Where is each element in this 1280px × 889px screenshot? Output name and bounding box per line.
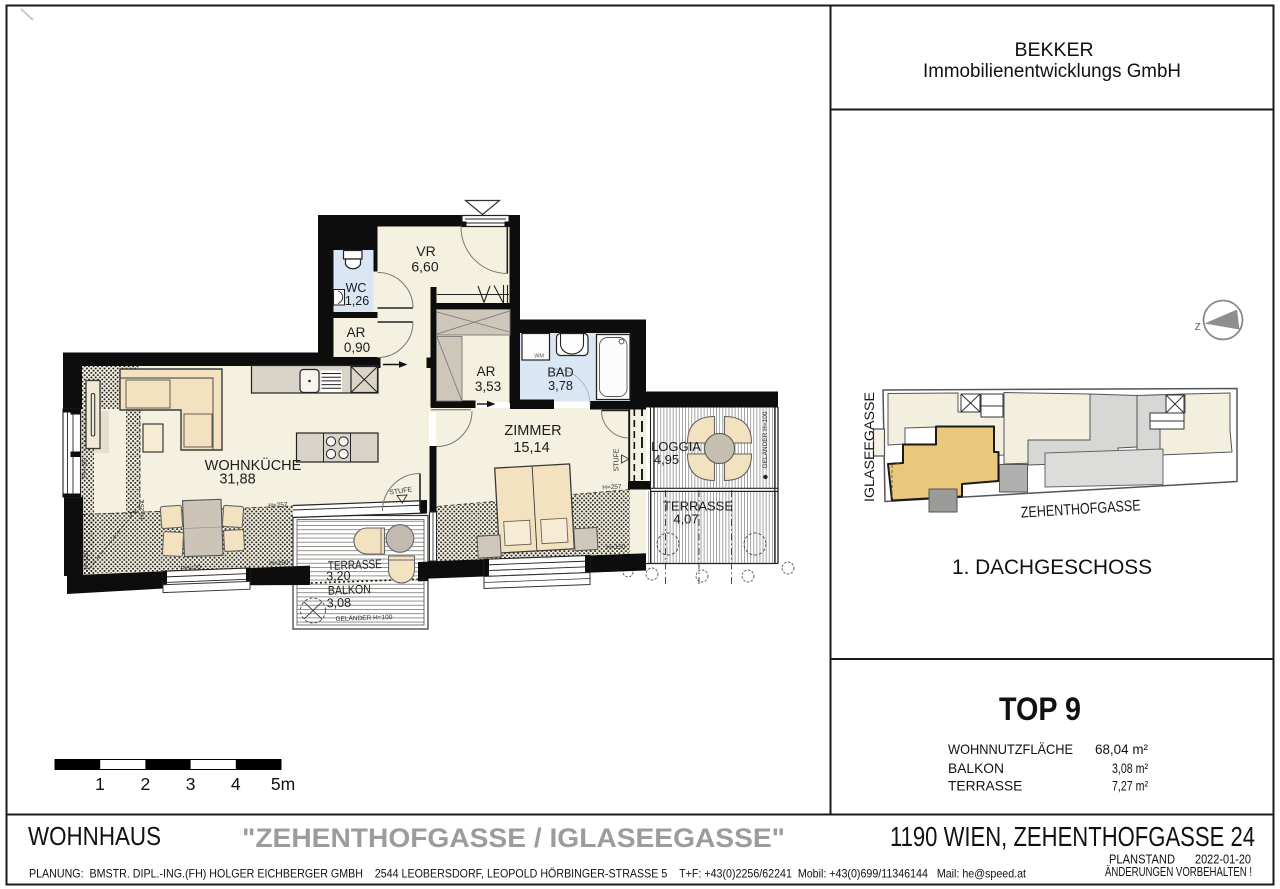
svg-text:BALKON: BALKON — [948, 761, 1004, 776]
svg-text:PH=20: PH=20 — [181, 564, 202, 572]
svg-text:3,08 m²: 3,08 m² — [1112, 761, 1148, 776]
svg-text:4: 4 — [231, 774, 241, 794]
svg-text:H=150: H=150 — [606, 543, 626, 551]
svg-text:WC: WC — [346, 281, 367, 295]
svg-text:0,90: 0,90 — [344, 340, 370, 355]
svg-text:GELÄNDER H=100: GELÄNDER H=100 — [761, 411, 769, 468]
svg-text:H=257: H=257 — [268, 501, 288, 509]
svg-text:1. DACHGESCHOSS: 1. DACHGESCHOSS — [952, 555, 1152, 579]
svg-text:WOHNNUTZFLÄCHE: WOHNNUTZFLÄCHE — [948, 741, 1073, 757]
svg-text:68,04 m²: 68,04 m² — [1095, 742, 1148, 757]
svg-text:TOP 9: TOP 9 — [999, 691, 1081, 727]
svg-text:H=257: H=257 — [602, 483, 622, 491]
svg-text:VR: VR — [416, 243, 435, 259]
svg-text:H=150: H=150 — [269, 559, 289, 567]
svg-text:31,88: 31,88 — [219, 472, 255, 488]
svg-text:5m: 5m — [271, 774, 295, 794]
svg-text:STUFE: STUFE — [614, 448, 621, 471]
svg-text:4,07: 4,07 — [673, 512, 698, 527]
svg-text:1: 1 — [95, 774, 105, 794]
svg-text:H=150: H=150 — [83, 550, 90, 570]
svg-text:PLANUNG: BMSTR. DIPL.-ING.(FH: PLANUNG: BMSTR. DIPL.-ING.(FH) HOLGER EI… — [29, 867, 1027, 881]
svg-text:PH=90: PH=90 — [82, 458, 89, 478]
svg-text:AR: AR — [347, 325, 366, 340]
svg-text:WOHNHAUS: WOHNHAUS — [28, 821, 161, 851]
svg-text:3: 3 — [186, 774, 196, 794]
svg-text:6,60: 6,60 — [411, 259, 438, 275]
svg-text:AR: AR — [477, 364, 496, 379]
svg-text:TERRASSE: TERRASSE — [948, 779, 1022, 794]
svg-text:2: 2 — [141, 774, 151, 794]
svg-text:4,95: 4,95 — [654, 452, 679, 467]
svg-text:z: z — [1195, 318, 1202, 333]
svg-text:15,14: 15,14 — [513, 440, 549, 456]
svg-text:7,27 m²: 7,27 m² — [1112, 779, 1148, 794]
svg-text:ÄNDERUNGEN VORBEHALTEN !: ÄNDERUNGEN VORBEHALTEN ! — [1105, 864, 1252, 879]
svg-text:3,08: 3,08 — [326, 596, 351, 611]
svg-text:"ZEHENTHOFGASSE / IGLASEEGASSE: "ZEHENTHOFGASSE / IGLASEEGASSE" — [242, 823, 785, 853]
svg-text:ZIMMER: ZIMMER — [504, 423, 561, 439]
svg-text:BEKKER: BEKKER — [1014, 39, 1093, 61]
svg-text:IGLASEEGASSE: IGLASEEGASSE — [861, 392, 877, 502]
svg-text:Immobilienentwicklungs GmbH: Immobilienentwicklungs GmbH — [923, 60, 1181, 82]
svg-text:3,20: 3,20 — [326, 569, 351, 584]
svg-text:3,53: 3,53 — [475, 379, 501, 394]
svg-text:WM: WM — [534, 354, 544, 360]
svg-text:H=257: H=257 — [139, 500, 146, 520]
svg-text:1,26: 1,26 — [345, 294, 369, 308]
svg-text:3,78: 3,78 — [548, 378, 573, 393]
svg-text:1190 WIEN, ZEHENTHOFGASSE 24: 1190 WIEN, ZEHENTHOFGASSE 24 — [890, 821, 1255, 852]
